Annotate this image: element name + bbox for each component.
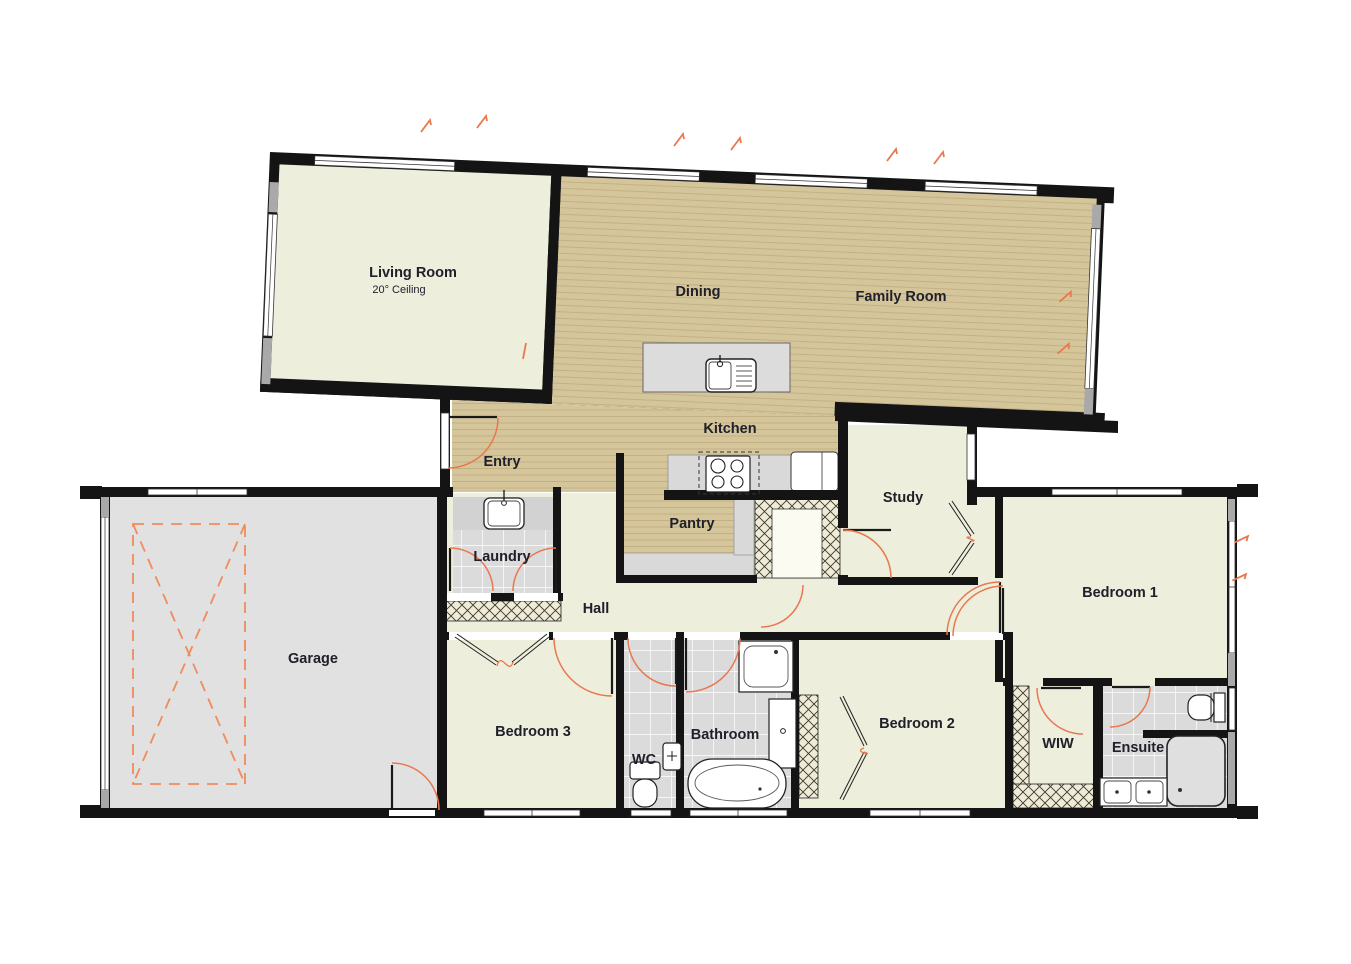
garage-label: Garage xyxy=(288,651,338,667)
ensuite-double-vanity xyxy=(1100,778,1167,806)
bathtub xyxy=(688,759,786,808)
fridge xyxy=(791,452,838,491)
hall-label: Hall xyxy=(583,601,610,617)
wc-label: WC xyxy=(632,752,657,768)
study-label: Study xyxy=(883,490,923,506)
floor-plan-drawing: Living Room 20° Ceiling Dining Family Ro… xyxy=(0,0,1351,964)
wc-toilet xyxy=(630,762,660,807)
ensuite-shower xyxy=(1167,736,1225,806)
dining-family-floor xyxy=(552,176,1097,426)
laundry-label: Laundry xyxy=(473,549,530,565)
laundry-linen-hatch xyxy=(443,601,561,621)
kitchen-island xyxy=(643,343,790,392)
kitchen-label: Kitchen xyxy=(703,421,756,437)
hall-linen-niche xyxy=(772,509,822,578)
wiw-hatch-bottom xyxy=(1013,784,1097,808)
living-room-ceiling-note: 20° Ceiling xyxy=(372,284,425,296)
bedroom-2-label: Bedroom 2 xyxy=(879,716,955,732)
pantry-shelf-bottom xyxy=(620,553,754,577)
garage-floor xyxy=(108,495,438,810)
ensuite-toilet xyxy=(1188,693,1225,722)
floor-plan-canvas: Living Room 20° Ceiling Dining Family Ro… xyxy=(0,0,1351,964)
study-floor-upper xyxy=(846,425,977,500)
family-room-label: Family Room xyxy=(855,289,946,305)
ensuite-label: Ensuite xyxy=(1112,740,1164,756)
pantry-shelf-side xyxy=(734,494,754,555)
wiw-label: WIW xyxy=(1042,736,1074,752)
wc-basin xyxy=(663,743,681,770)
bathroom-label: Bathroom xyxy=(691,727,759,743)
garage-door xyxy=(101,497,109,808)
vanity xyxy=(769,699,796,768)
pantry-label: Pantry xyxy=(669,516,714,532)
living-room-label: Living Room xyxy=(369,265,457,281)
shower xyxy=(739,641,793,692)
cooktop xyxy=(699,452,759,494)
dining-label: Dining xyxy=(675,284,720,300)
bedroom-1-label: Bedroom 1 xyxy=(1082,585,1158,601)
entry-label: Entry xyxy=(483,454,520,470)
bedroom-3-label: Bedroom 3 xyxy=(495,724,571,740)
bedroom2-robe-hatch xyxy=(799,695,818,798)
